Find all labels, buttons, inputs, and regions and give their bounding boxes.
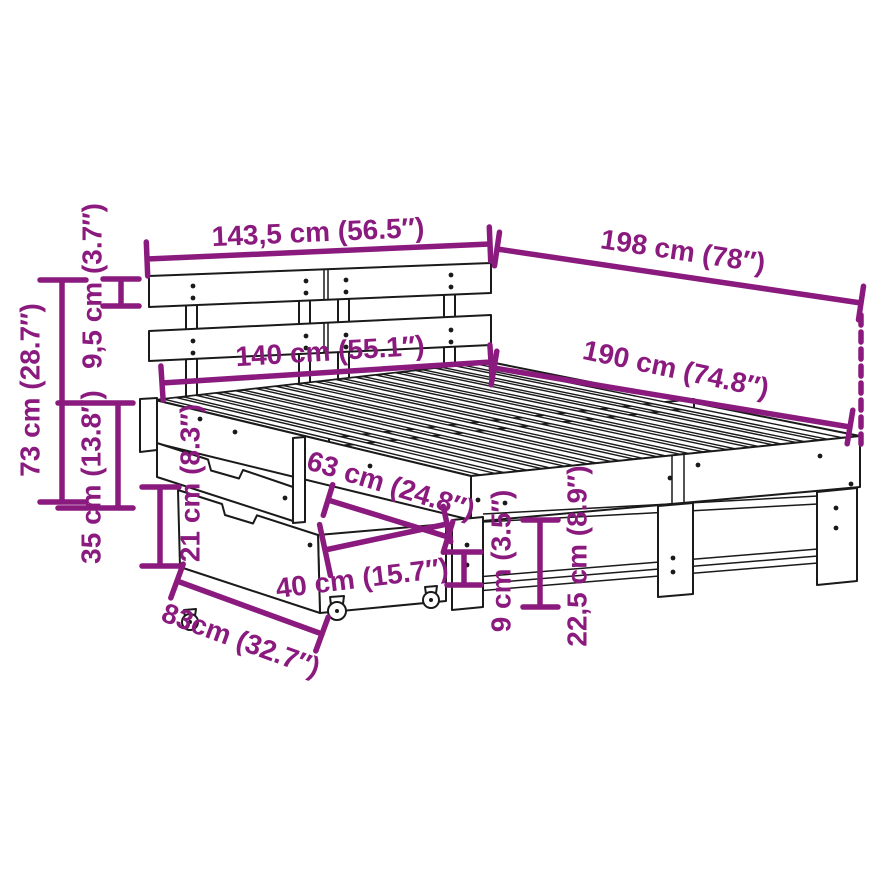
dim-side-rail-height-label: 9 cm (3.5″) <box>486 490 517 633</box>
dim-headboard-plank-height-label: 9,5 cm (3.7″) <box>77 203 108 369</box>
headboard-plank-top <box>149 263 491 307</box>
bed-dimension-diagram: 143,5 cm (56.5″) 198 cm (78″) 9,5 cm (3.… <box>0 0 880 880</box>
dim-drawer-length-label: 83cm (32.7″) <box>158 597 325 683</box>
dim-drawer-front-height-label: 21 cm (8.3″) <box>175 404 206 562</box>
foot-back-leg <box>817 488 857 585</box>
dim-underbed-clearance-label: 35 cm (13.8″) <box>76 390 107 564</box>
dim-headboard-plank-height: 9,5 cm (3.7″) <box>77 203 140 369</box>
dim-headboard-height-label: 73 cm (28.7″) <box>15 303 46 477</box>
dim-frame-height-label: 22,5 cm (8.9″) <box>562 465 593 647</box>
diagram-canvas: 143,5 cm (56.5″) 198 cm (78″) 9,5 cm (3.… <box>0 0 880 880</box>
foot-front-leg <box>658 503 693 597</box>
bay-upright <box>293 437 305 523</box>
dim-underbed-clearance: 35 cm (13.8″) <box>58 390 133 564</box>
